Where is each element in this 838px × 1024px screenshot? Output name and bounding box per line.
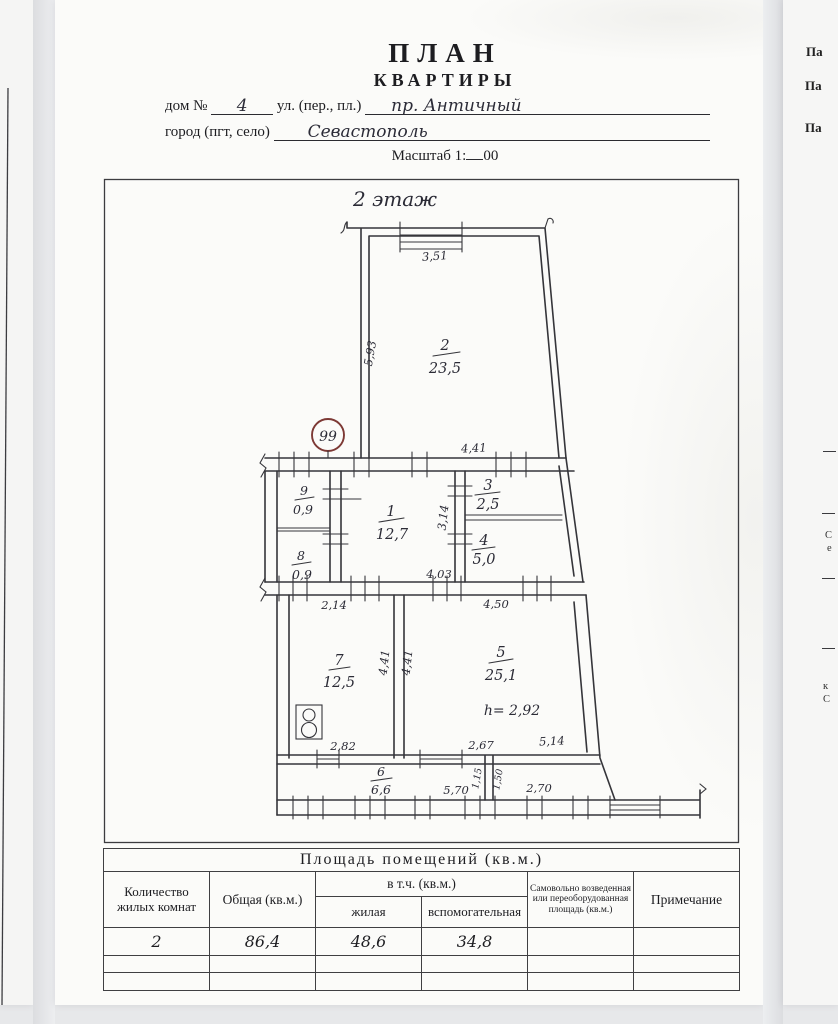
- empty-cell: [422, 973, 528, 991]
- dim-room7-bottom: 2,82: [329, 739, 356, 753]
- col-living: жилая: [316, 897, 422, 928]
- table-header-row-1: Количество жилых комнат Общая (кв.м.) в …: [104, 872, 740, 897]
- dim-room2-bottom: 4,41: [460, 440, 487, 455]
- room3-area: 2,5: [475, 497, 499, 513]
- scanned-document: ПЛАН КВАРТИРЫ дом № 4 ул. (пер., пл.) пр…: [0, 0, 838, 1024]
- value-unauthorized: [528, 928, 634, 956]
- room2-window: [400, 222, 462, 252]
- document-page: ПЛАН КВАРТИРЫ дом № 4 ул. (пер., пл.) пр…: [55, 0, 763, 1005]
- street-value: пр. Античный: [391, 96, 521, 116]
- empty-cell: [528, 973, 634, 991]
- clipped-letter: С: [825, 530, 832, 541]
- room7-area: 12,5: [323, 675, 355, 691]
- empty-cell: [104, 973, 210, 991]
- dim-room6-bottom: 5,70: [443, 783, 469, 797]
- form-line-house-street: дом № 4 ул. (пер., пл.) пр. Античный: [165, 96, 710, 115]
- dim-room5-bottom-right: 5,14: [539, 733, 565, 748]
- value-auxiliary: 34,8: [422, 928, 528, 956]
- table-empty-row: [104, 956, 740, 973]
- room8-area: 0,9: [292, 567, 312, 582]
- page-subtitle: КВАРТИРЫ: [295, 70, 595, 91]
- room4-number: 4: [478, 533, 488, 549]
- ceiling-height-note: h= 2,92: [484, 703, 540, 719]
- clipped-text-fragment: Па: [805, 120, 822, 136]
- room1-number: 1: [386, 504, 395, 520]
- adjacent-page-left: [0, 0, 33, 1005]
- left-page-frame-line: [0, 0, 33, 1005]
- dim-room6-divider-left: 1,15: [470, 767, 485, 790]
- clipped-letter: к: [823, 681, 828, 692]
- empty-cell: [422, 956, 528, 973]
- plan-frame: [105, 180, 739, 843]
- table-title: Площадь помещений (кв.м.): [104, 849, 740, 872]
- stamp-number: 99: [319, 429, 337, 445]
- empty-cell: [528, 956, 634, 973]
- room5-area: 25,1: [484, 668, 517, 684]
- room9-area: 0,9: [293, 502, 313, 517]
- middle-band-walls: [265, 458, 583, 582]
- room2-number: 2: [439, 338, 449, 354]
- clipped-text-fragment: Па: [806, 44, 823, 60]
- dim-room5-left: 4,41: [398, 649, 415, 677]
- room8-number: 8: [297, 548, 305, 563]
- room2-area: 23,5: [428, 361, 461, 377]
- table-value-row: 2 86,4 48,6 34,8: [104, 928, 740, 956]
- room9-number: 9: [300, 483, 308, 498]
- dim-room6-divider-right: 1,50: [491, 768, 506, 791]
- city-label: город (пгт, село): [165, 124, 270, 141]
- page-gutter-left: [33, 0, 55, 1024]
- empty-cell: [210, 956, 316, 973]
- clipped-line-fragment: [823, 451, 836, 452]
- stamp-99: 99: [312, 419, 344, 458]
- house-label: дом №: [165, 98, 207, 115]
- room5-number: 5: [496, 645, 505, 661]
- city-field: Севастополь: [274, 122, 710, 141]
- stove-icon: [296, 705, 322, 739]
- dim-rooms34-left: 3,14: [435, 504, 452, 531]
- dim-room7-top: 2,14: [320, 598, 347, 612]
- col-note: Примечание: [634, 872, 740, 928]
- room6-number: 6: [377, 764, 385, 779]
- lower-band-walls: [277, 595, 615, 815]
- col-including: в т.ч. (кв.м.): [316, 872, 528, 897]
- page-title: ПЛАН: [295, 38, 595, 69]
- col-auxiliary: вспомогательная: [422, 897, 528, 928]
- col-total: Общая (кв.м.): [210, 872, 316, 928]
- dim-balcony-bottom: 2,70: [525, 781, 552, 795]
- dim-room2-window: 3,51: [421, 248, 448, 264]
- empty-cell: [104, 956, 210, 973]
- street-label: ул. (пер., пл.): [277, 98, 362, 115]
- scale-line: Масштаб 1:00: [295, 145, 595, 165]
- empty-cell: [210, 973, 316, 991]
- empty-cell: [316, 973, 422, 991]
- room3-number: 3: [483, 478, 492, 494]
- floor-plan: 2 этаж 99: [103, 178, 740, 845]
- col-rooms-count: Количество жилых комнат: [104, 872, 210, 928]
- table-empty-row: [104, 973, 740, 991]
- room7-number: 7: [334, 653, 344, 669]
- col-unauthorized: Самовольно возведенная или переоборудова…: [528, 872, 634, 928]
- page-gutter-right: [763, 0, 783, 1024]
- city-value: Севастополь: [308, 122, 428, 142]
- clipped-letter: е: [827, 543, 832, 554]
- house-value: 4: [237, 96, 248, 116]
- value-rooms-count: 2: [104, 928, 210, 956]
- dim-room5-top: 4,50: [482, 597, 509, 611]
- value-note: [634, 928, 740, 956]
- value-living: 48,6: [316, 928, 422, 956]
- form-line-city: город (пгт, село) Севастополь: [165, 122, 710, 141]
- clipped-line-fragment: [822, 648, 835, 649]
- dim-room7-right: 4,41: [375, 649, 392, 677]
- street-field: пр. Античный: [365, 96, 710, 115]
- value-total: 86,4: [210, 928, 316, 956]
- table-title-row: Площадь помещений (кв.м.): [104, 849, 740, 872]
- scale-value: 00: [483, 148, 498, 164]
- adjacent-page-right: Па Па Па С е к С: [783, 0, 838, 1005]
- empty-cell: [316, 956, 422, 973]
- scale-label: Масштаб 1:: [392, 148, 467, 164]
- clipped-letter: С: [823, 694, 830, 705]
- dim-room2-left: 5,93: [361, 339, 379, 367]
- upper-corridor-wall: [260, 452, 574, 477]
- clipped-text-fragment: Па: [805, 78, 822, 94]
- clipped-line-fragment: [822, 578, 835, 579]
- clipped-line-fragment: [822, 513, 835, 514]
- empty-cell: [634, 956, 740, 973]
- area-table: Площадь помещений (кв.м.) Количество жил…: [103, 848, 740, 991]
- room4-area: 5,0: [472, 552, 495, 568]
- house-field: 4: [211, 96, 273, 115]
- room1-area: 12,7: [376, 527, 409, 543]
- room2-walls: [341, 218, 566, 458]
- dim-room5-bottom-left: 2,67: [467, 738, 494, 752]
- scale-blank: [466, 145, 483, 160]
- empty-cell: [634, 973, 740, 991]
- room6-area: 6,6: [371, 782, 391, 797]
- floor-label: 2 этаж: [352, 187, 437, 211]
- dim-room1-bottom: 4,03: [425, 567, 452, 581]
